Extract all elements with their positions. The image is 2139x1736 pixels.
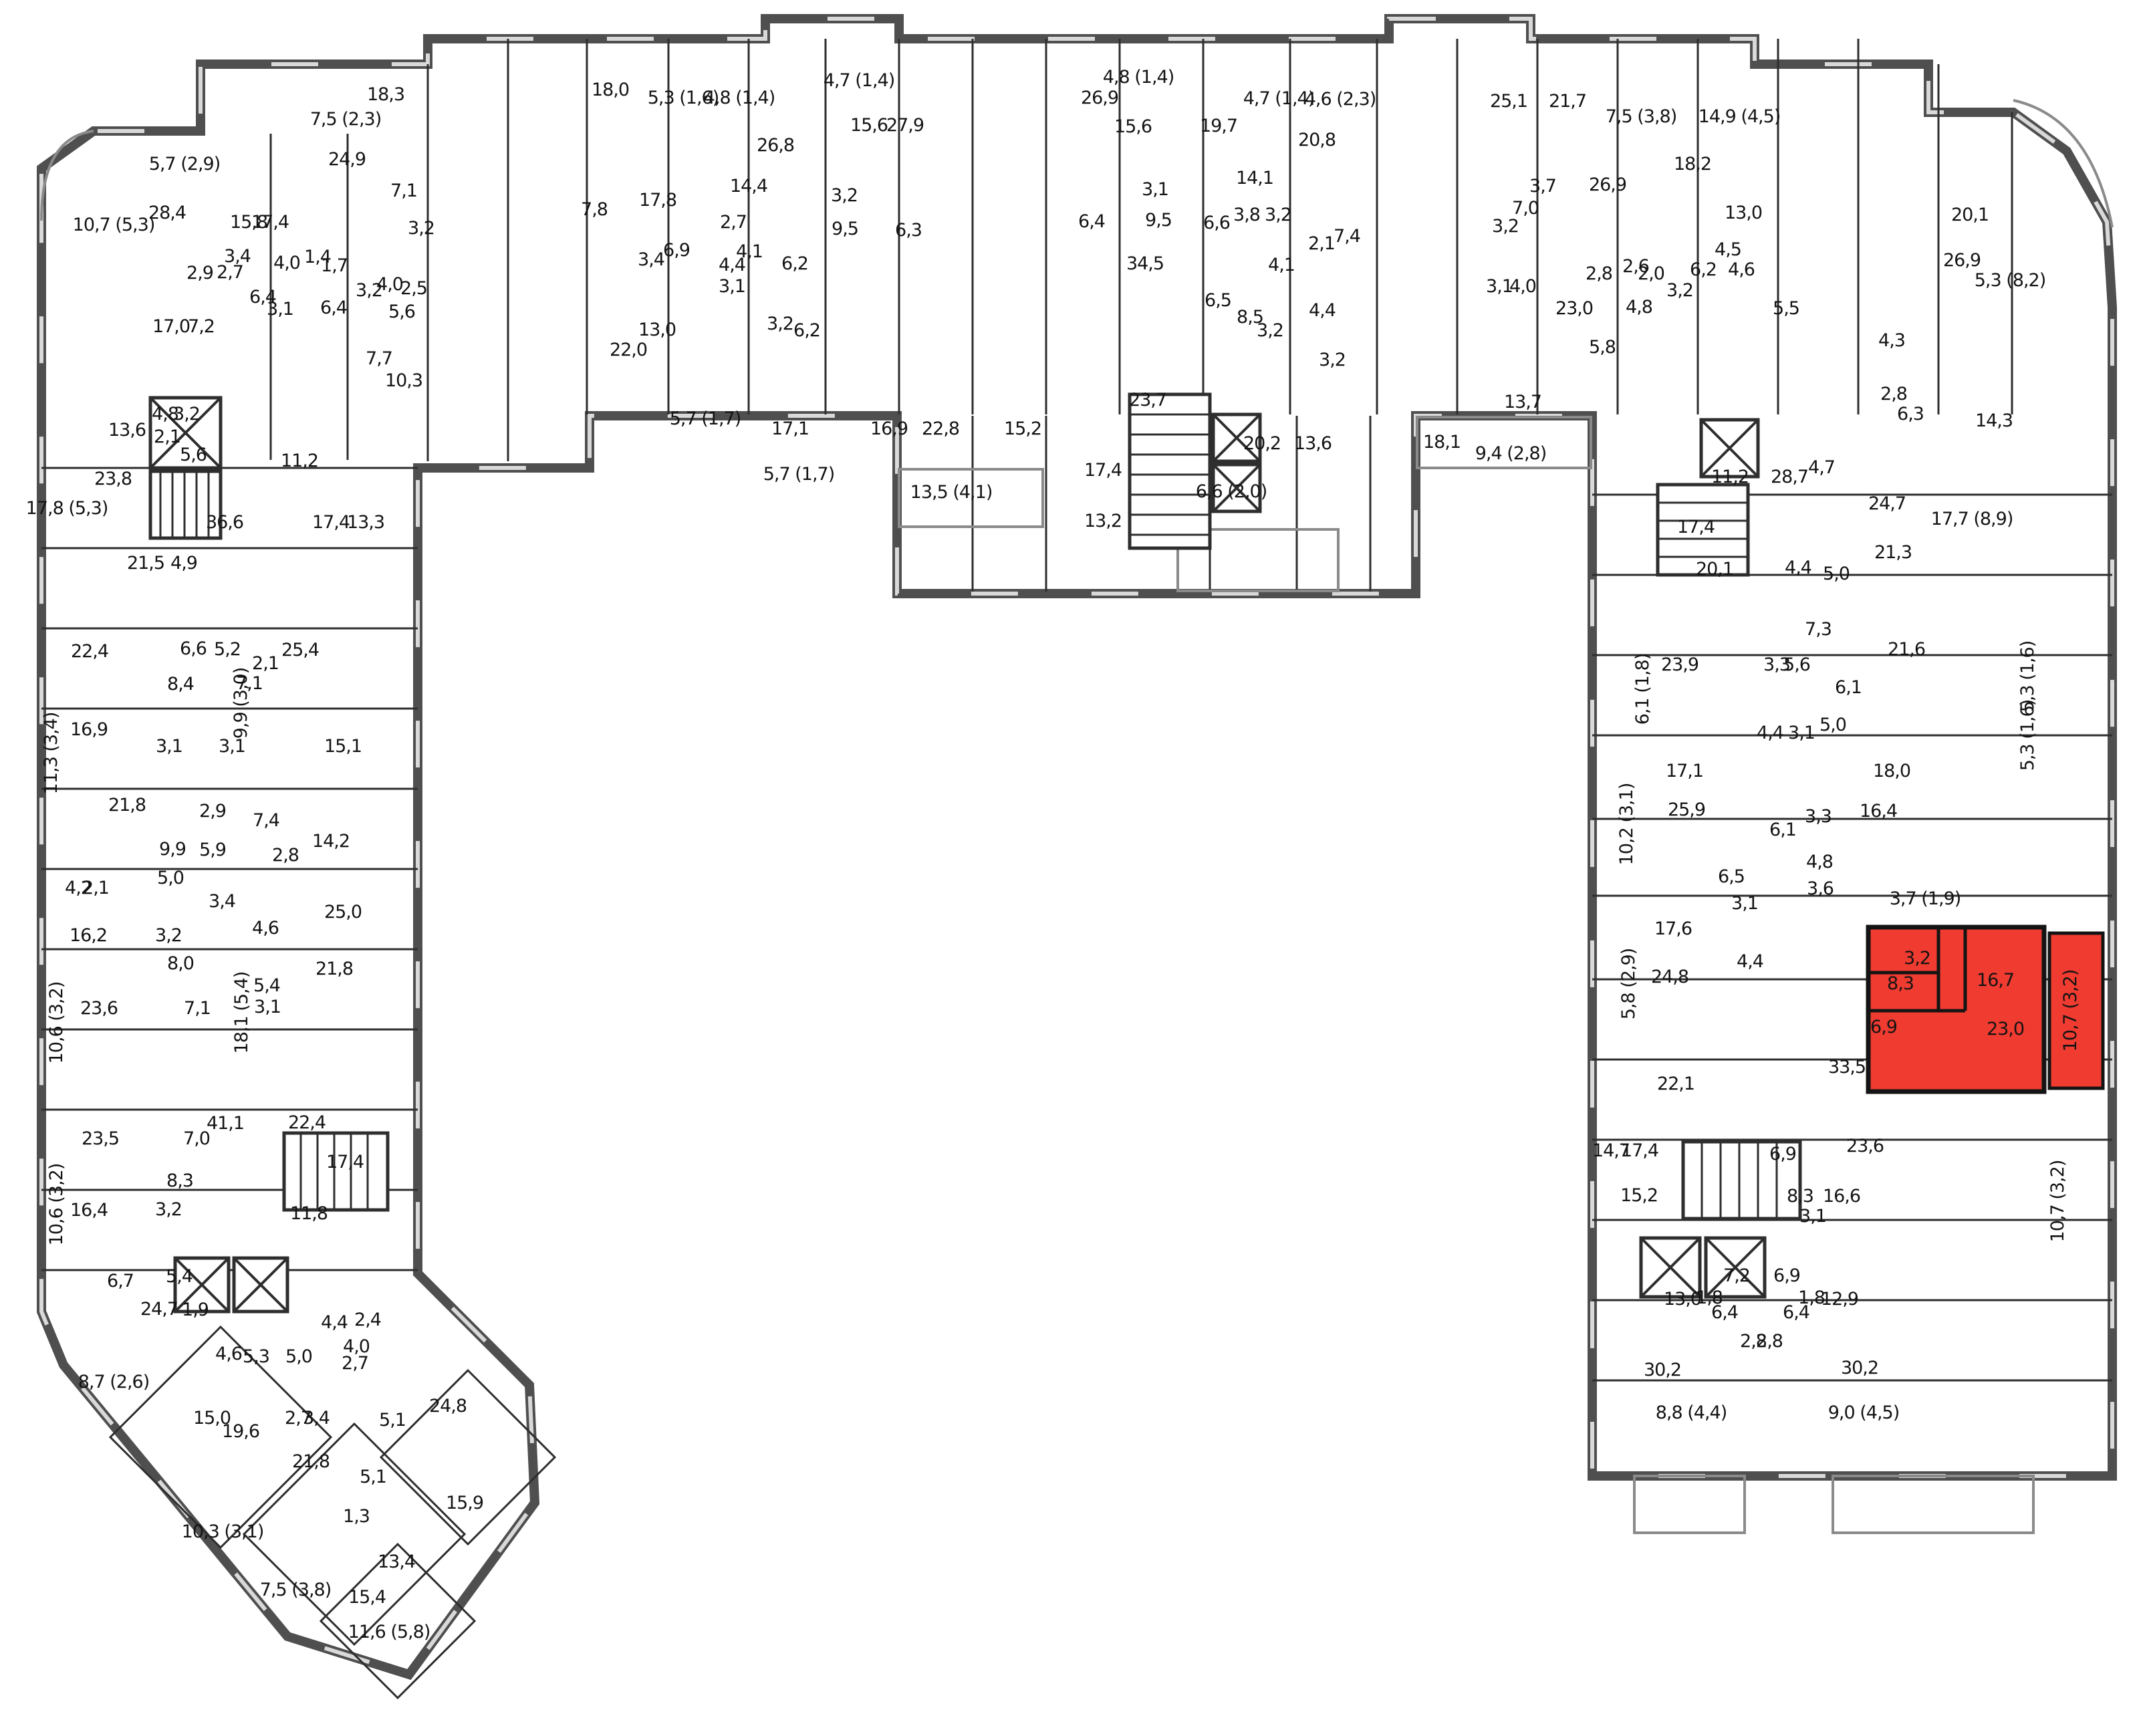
area-label: 8,3 — [166, 1170, 193, 1191]
area-label: 21,7 — [1549, 91, 1586, 112]
area-label: 8,8 (4,4) — [1656, 1402, 1727, 1423]
area-label: 3,2 — [408, 218, 434, 239]
area-label: 3,3 — [1805, 806, 1832, 827]
area-label: 30,2 — [1644, 1360, 1681, 1380]
area-label: 9,5 — [832, 219, 858, 239]
area-label: 23,9 — [1661, 654, 1698, 675]
area-label: 23,5 — [82, 1128, 119, 1149]
area-label: 18,1 — [1423, 432, 1461, 453]
area-label: 9,9 (3,0) — [231, 668, 251, 739]
area-label: 17,4 — [251, 212, 289, 233]
area-label: 24,8 — [429, 1396, 467, 1416]
area-label: 7,1 — [184, 998, 211, 1019]
area-label: 17,4 — [326, 1152, 364, 1172]
area-label: 5,3 (8,2) — [1975, 270, 2046, 291]
area-label: 16,7 — [1977, 970, 2014, 991]
area-label: 5,9 — [199, 840, 226, 860]
area-label: 18,1 (5,4) — [231, 972, 252, 1054]
area-label: 4,5 — [1715, 239, 1741, 260]
area-label: 3,2 — [831, 185, 858, 206]
area-label: 6,1 — [1835, 677, 1862, 698]
area-label: 24,8 — [1651, 967, 1688, 987]
area-label: 5,1 — [379, 1410, 406, 1431]
area-label: 5,3 (1,6) — [2017, 700, 2038, 771]
area-label: 10,3 (3,1) — [182, 1521, 264, 1542]
area-label: 5,2 — [214, 639, 241, 660]
area-label: 3,4 — [209, 891, 235, 912]
area-label: 9,0 (4,5) — [1828, 1402, 1900, 1423]
area-label: 21,5 — [127, 553, 164, 574]
area-label: 4,0 — [1509, 276, 1536, 297]
area-label: 16,4 — [1860, 801, 1897, 822]
area-label: 2,4 — [354, 1310, 381, 1330]
area-label: 2,8 — [1756, 1331, 1783, 1352]
area-label: 23,8 — [94, 469, 132, 489]
area-label: 2,1 — [82, 878, 109, 898]
area-label: 34,5 — [1126, 253, 1164, 274]
area-label: 3,7 (1,9) — [1890, 888, 1961, 909]
area-label: 2,8 — [1586, 263, 1612, 284]
area-label: 20,2 — [1243, 433, 1281, 454]
area-label: 17,4 — [312, 512, 350, 533]
area-label: 4,0 — [273, 253, 300, 273]
area-label: 3,4 — [638, 249, 664, 270]
area-label: 2,9 — [199, 801, 226, 822]
area-label: 13,0 — [1725, 203, 1762, 223]
area-label: 3,1 — [1788, 723, 1815, 743]
area-label: 5,6 — [1783, 654, 1810, 675]
area-label: 14,2 — [312, 831, 350, 852]
area-label: 23,0 — [1555, 298, 1593, 319]
area-label: 1,9 — [182, 1299, 209, 1320]
area-label: 9,4 (2,8) — [1475, 443, 1547, 464]
area-label: 3,4 — [303, 1408, 330, 1429]
area-label: 3,7 — [1529, 176, 1556, 197]
area-label: 3,1 — [719, 276, 745, 297]
area-label: 4,4 — [1309, 300, 1336, 321]
area-label: 16,4 — [70, 1200, 108, 1221]
area-label: 22,1 — [1657, 1074, 1694, 1094]
area-label: 15,6 — [850, 115, 888, 136]
area-label: 8,0 — [167, 953, 194, 974]
area-label: 5,0 — [1823, 564, 1850, 584]
area-label: 13,7 — [1504, 392, 1541, 412]
area-label: 13,6 — [1294, 433, 1332, 454]
area-label: 20,8 — [1298, 130, 1336, 150]
area-label: 3,1 — [267, 299, 293, 320]
area-label: 17,4 — [1084, 460, 1122, 481]
area-label: 6,5 — [1205, 290, 1231, 311]
area-label: 25,0 — [324, 902, 362, 922]
area-label: 6,9 — [1773, 1265, 1800, 1286]
area-label: 6,6 (2,0) — [1196, 481, 1267, 502]
area-label: 16,9 — [870, 418, 908, 439]
area-label: 26,9 — [1589, 174, 1626, 195]
area-label: 13,3 — [347, 512, 384, 533]
area-label: 3,2 — [155, 1199, 182, 1220]
area-label: 15,6 — [1114, 116, 1152, 137]
area-label: 6,1 (1,8) — [1632, 654, 1653, 725]
area-label: 24,9 — [328, 149, 366, 170]
area-label: 6,4 — [1078, 211, 1105, 232]
area-label: 3,2 — [173, 404, 200, 424]
area-label: 7,3 — [1805, 619, 1832, 640]
area-label: 19,6 — [222, 1421, 259, 1442]
area-label: 13,2 — [1084, 511, 1122, 531]
area-label: 7,5 (2,3) — [310, 109, 382, 130]
area-label: 4,6 — [1728, 259, 1755, 280]
area-label: 30,2 — [1841, 1358, 1878, 1378]
area-label: 24,7 — [140, 1299, 178, 1320]
area-label: 11,8 — [290, 1203, 328, 1224]
area-label: 17,4 — [1677, 517, 1715, 537]
area-label: 2,7 — [217, 262, 243, 283]
area-label: 6,9 — [1870, 1017, 1897, 1037]
area-label: 3,1 — [254, 997, 281, 1017]
area-label: 5,1 — [360, 1467, 386, 1487]
area-label: 6,2 — [793, 320, 820, 341]
area-label: 2,9 — [186, 263, 213, 283]
area-label: 17,1 — [1666, 761, 1703, 781]
area-label: 27,9 — [886, 115, 924, 136]
area-label: 20,1 — [1696, 559, 1733, 580]
area-label: 16,6 — [1823, 1186, 1860, 1207]
area-label: 10,6 (3,2) — [46, 982, 67, 1064]
area-label: 2,1 — [1308, 233, 1335, 254]
area-label: 9,9 — [159, 839, 186, 860]
area-label: 6,6 — [1203, 213, 1230, 233]
area-label: 8,3 — [1887, 973, 1914, 994]
area-label: 7,1 — [390, 180, 417, 201]
area-label: 3,2 — [1666, 280, 1693, 301]
area-label: 17,4 — [1621, 1140, 1658, 1161]
area-label: 14,4 — [730, 176, 767, 197]
area-label: 15,4 — [348, 1587, 386, 1608]
area-label: 3,1 — [219, 736, 245, 757]
area-label: 5,0 — [1819, 715, 1846, 735]
area-label: 4,4 — [1757, 723, 1783, 743]
area-label: 5,4 — [253, 975, 280, 996]
area-label: 6,4 — [1783, 1302, 1809, 1323]
area-label: 7,5 (3,8) — [1606, 106, 1677, 127]
area-label: 3,2 — [1265, 205, 1291, 225]
area-label: 3,1 — [1142, 179, 1168, 200]
area-label: 15,2 — [1004, 418, 1041, 439]
area-label: 33,5 — [1828, 1057, 1866, 1078]
area-label: 3,1 — [1486, 276, 1513, 297]
area-label: 23,7 — [1129, 390, 1166, 410]
area-label: 6,5 — [1718, 866, 1745, 887]
area-label: 23,6 — [80, 998, 118, 1019]
area-label: 6,2 — [781, 253, 808, 274]
area-label: 2,1 — [154, 426, 180, 447]
area-label: 3,6 — [1807, 878, 1834, 899]
area-label: 14,3 — [1975, 410, 2013, 431]
area-label: 2,7 — [342, 1353, 368, 1374]
area-label: 10,7 (5,3) — [73, 215, 155, 235]
area-label: 26,8 — [757, 135, 794, 156]
area-label: 3,2 — [1904, 948, 1930, 969]
area-label: 22,4 — [288, 1112, 326, 1133]
area-label: 4,6 — [215, 1344, 242, 1364]
area-label: 15,1 — [324, 736, 362, 757]
area-label: 4,7 (1,4) — [1243, 88, 1315, 109]
area-label: 8,7 (2,6) — [78, 1372, 150, 1392]
area-label: 5,4 — [166, 1266, 193, 1287]
area-label: 11,3 (3,4) — [41, 713, 61, 795]
area-label: 3,1 — [1799, 1206, 1826, 1227]
area-label: 18,3 — [367, 84, 404, 105]
area-label: 5,6 — [388, 301, 415, 322]
area-label: 4,4 — [1737, 951, 1763, 972]
area-label: 6,7 — [107, 1271, 134, 1291]
area-label: 6,2 — [1690, 259, 1717, 280]
area-label: 5,6 — [180, 445, 207, 465]
area-label: 15,9 — [446, 1493, 483, 1513]
area-label: 21,8 — [316, 959, 353, 979]
area-label: 17,8 — [639, 190, 676, 211]
area-label: 22,0 — [610, 340, 647, 360]
area-label: 10,3 — [385, 370, 422, 391]
area-label: 12,9 — [1821, 1289, 1858, 1310]
area-label: 20,1 — [1951, 205, 1989, 225]
area-label: 6,1 — [1769, 820, 1796, 840]
area-label: 41,1 — [207, 1113, 244, 1134]
area-label: 4,7 — [1808, 457, 1835, 478]
area-label: 5,0 — [285, 1346, 312, 1367]
area-label: 21,3 — [1874, 542, 1912, 563]
area-label: 6,6 — [180, 638, 207, 659]
area-label: 7,7 — [366, 348, 392, 369]
area-label: 4,3 — [1878, 330, 1905, 351]
area-label: 3,2 — [1257, 320, 1283, 341]
area-label: 1,3 — [343, 1506, 370, 1527]
area-label: 6,9 — [663, 240, 690, 261]
area-label: 19,7 — [1200, 116, 1237, 136]
area-label: 24,7 — [1868, 493, 1906, 514]
area-label: 5,8 — [1589, 337, 1616, 358]
area-label: 2,8 — [1880, 384, 1907, 404]
area-label: 16,2 — [70, 925, 107, 946]
area-label: 17,0 — [152, 316, 190, 337]
area-label: 26,9 — [1081, 88, 1118, 108]
area-label: 25,9 — [1668, 799, 1705, 820]
area-label: 10,7 (3,2) — [2060, 970, 2081, 1052]
area-label: 13,4 — [378, 1552, 415, 1572]
area-label: 4,8 — [1626, 297, 1652, 318]
area-label: 5,5 — [1773, 298, 1799, 319]
area-label: 8,3 — [1787, 1186, 1813, 1207]
area-label: 2,0 — [1638, 263, 1664, 284]
area-label: 17,7 (8,9) — [1931, 509, 2013, 529]
area-label: 4,7 (1,4) — [824, 70, 895, 91]
area-label: 6,4 — [1711, 1302, 1738, 1323]
area-label: 3,2 — [1319, 350, 1346, 370]
area-label: 7,4 — [253, 810, 279, 831]
area-label: 4,4 — [1785, 557, 1811, 578]
area-label: 17,1 — [771, 418, 809, 439]
area-label: 7,5 (3,8) — [260, 1580, 332, 1600]
area-label: 6,4 — [320, 297, 347, 318]
area-label: 25,4 — [281, 640, 319, 660]
area-label: 4,8 (1,4) — [704, 88, 775, 108]
area-label: 23,0 — [1987, 1019, 2024, 1039]
area-label: 3,8 — [1233, 205, 1260, 225]
area-label: 16,9 — [70, 719, 108, 740]
area-label: 7,8 — [581, 199, 608, 220]
area-label: 3,2 — [1492, 216, 1519, 237]
area-label: 21,8 — [108, 795, 146, 816]
area-label: 5,7 (1,7) — [670, 408, 741, 429]
area-label: 5,7 (1,7) — [763, 464, 835, 485]
area-label: 17,6 — [1654, 918, 1692, 939]
area-label: 18,2 — [1674, 154, 1711, 174]
area-label: 4,8 (1,4) — [1103, 67, 1174, 88]
area-label: 6,9 — [1769, 1144, 1796, 1164]
area-label: 13,5 (4,1) — [910, 482, 993, 503]
area-label: 25,1 — [1490, 91, 1527, 112]
area-label: 2,8 — [272, 845, 299, 866]
floor-plan-svg: 18,37,5 (2,3)24,95,7 (2,9)28,410,7 (5,3)… — [0, 0, 2139, 1736]
area-label: 21,8 — [292, 1451, 330, 1472]
area-label: 10,2 (3,1) — [1616, 783, 1637, 866]
area-label: 17,8 (5,3) — [26, 498, 108, 519]
area-label: 23,6 — [1846, 1136, 1884, 1156]
area-label: 22,4 — [71, 641, 108, 662]
area-label: 18,0 — [592, 80, 629, 100]
area-label: 2,5 — [400, 278, 427, 299]
area-label: 14,1 — [1236, 168, 1273, 189]
area-label: 3,1 — [156, 736, 182, 757]
floor-plan: 18,37,5 (2,3)24,95,7 (2,9)28,410,7 (5,3)… — [0, 0, 2139, 1736]
area-label: 4,8 — [1806, 852, 1833, 872]
area-label: 4,4 — [719, 255, 745, 275]
area-label: 5,8 (2,9) — [1618, 949, 1639, 1020]
area-label: 3,2 — [767, 314, 793, 334]
area-label: 6,3 — [895, 220, 922, 241]
area-label: 15,2 — [1620, 1185, 1658, 1206]
area-label: 7,2 — [1723, 1265, 1750, 1286]
area-label: 2,7 — [720, 212, 747, 233]
area-label: 3,2 — [155, 925, 182, 946]
area-label: 4,4 — [321, 1312, 348, 1333]
area-label: 10,7 (3,2) — [2047, 1160, 2068, 1243]
area-label: 14,9 (4,5) — [1698, 106, 1781, 127]
area-label: 18,0 — [1873, 761, 1910, 781]
area-label: 7,2 — [188, 316, 215, 337]
area-label: 8,4 — [167, 674, 194, 695]
area-label: 5,0 — [157, 868, 184, 888]
area-label: 1,7 — [321, 255, 348, 276]
area-label: 4,0 — [376, 274, 403, 295]
area-label: 36,6 — [206, 512, 243, 533]
area-label: 21,6 — [1888, 639, 1925, 660]
area-label: 2,1 — [252, 653, 279, 674]
area-label: 4,1 — [1268, 255, 1295, 275]
area-label: 7,4 — [1334, 226, 1360, 247]
area-label: 10,6 (3,2) — [46, 1164, 67, 1246]
area-label: 11,2 — [281, 451, 318, 471]
area-label: 5,7 (2,9) — [149, 154, 221, 174]
area-label: 5,3 — [243, 1346, 269, 1367]
area-label: 3,1 — [1731, 893, 1758, 914]
area-label: 11,6 (5,8) — [348, 1622, 430, 1642]
area-label: 26,9 — [1943, 250, 1981, 271]
area-label: 4,9 — [170, 553, 197, 574]
area-label: 6,3 — [1897, 404, 1924, 424]
area-label: 13,0 — [638, 320, 676, 340]
area-label: 22,8 — [922, 418, 959, 439]
area-label: 28,7 — [1771, 467, 1808, 487]
area-label: 4,6 — [252, 918, 279, 939]
area-label: 4,6 (2,3) — [1305, 89, 1376, 110]
area-label: 11,2 — [1711, 467, 1749, 487]
area-label: 9,5 — [1145, 210, 1172, 231]
area-label: 13,6 — [108, 420, 146, 441]
